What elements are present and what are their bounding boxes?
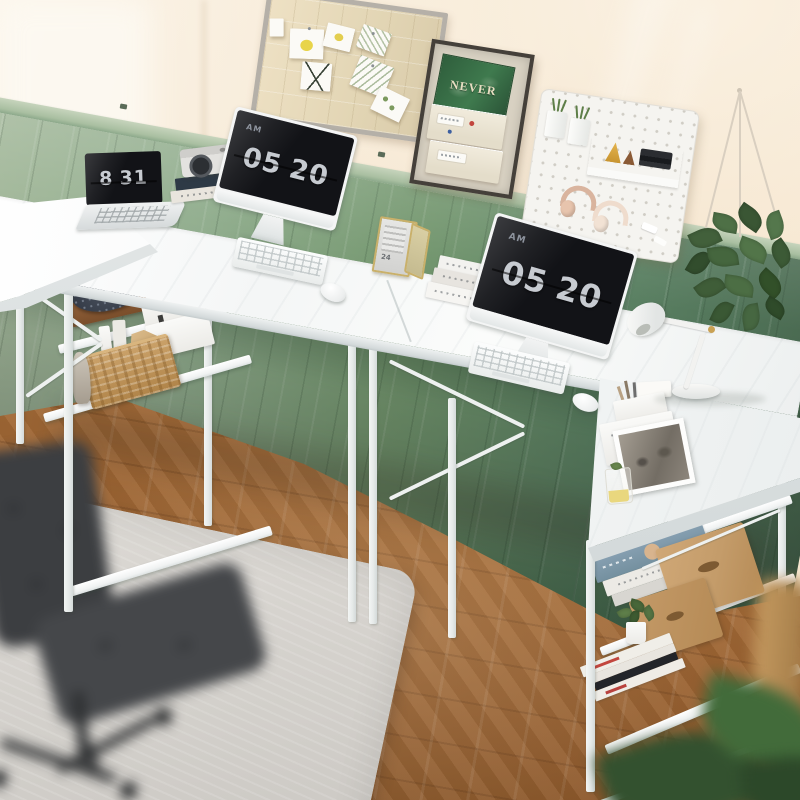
cone-ornament [623,150,637,166]
clock-minutes: 20 [286,153,332,193]
pinned-card-lemon [322,22,355,52]
shelf-front-post [586,540,595,792]
pegboard-hook [653,235,667,246]
desk-lamp [596,288,766,418]
laptop-flip-clock: 8 31 [85,151,163,206]
lamp-arm [683,333,706,390]
chair-caster [120,782,137,799]
office-chair [0,440,320,800]
calendar-day: 24 [380,253,391,262]
pegboard-shelf [587,137,684,188]
clock-hours: 8 [99,168,114,190]
lamp-shade [621,296,671,343]
clock-hours: 05 [497,253,552,302]
rail-clip [120,103,128,109]
drinking-glass [604,467,633,505]
home-office-photo: NEVER [0,0,800,800]
drink [608,489,629,503]
desk-leg [64,268,73,612]
clock-hours: 05 [239,141,285,181]
pegboard-planter [567,118,591,147]
chair-caster [155,708,172,725]
clock-minutes: 31 [119,166,148,189]
plant-pot [626,622,646,644]
pinned-tag [270,19,284,37]
lamp-base [672,384,720,399]
pegboard-planter [544,110,568,139]
pocket-label [437,114,464,127]
pinned-card-botanical [356,24,392,57]
pocket-label [437,150,466,163]
pinned-card-scissors [300,61,332,92]
rail-clip [378,151,386,157]
laptop-screen: 8 31 [85,151,163,206]
cone-ornament [605,141,624,163]
lamp-opening [634,322,652,338]
laptop-keyboard-deck [75,201,186,230]
desk-leg [369,344,377,624]
desk-leg [448,398,456,638]
desk-leg [348,340,356,622]
pegboard-hook [641,222,658,235]
red-sticker [469,121,475,127]
pinned-card-lemon [289,28,324,59]
magazine-title: NEVER [449,77,498,99]
chair-caster [0,770,7,787]
calendar-pages [381,225,407,254]
camera-stack [639,148,673,170]
desk-flip-calendar: 24 [371,210,434,282]
lamp-joint [708,326,715,333]
blue-sticker [447,129,452,134]
